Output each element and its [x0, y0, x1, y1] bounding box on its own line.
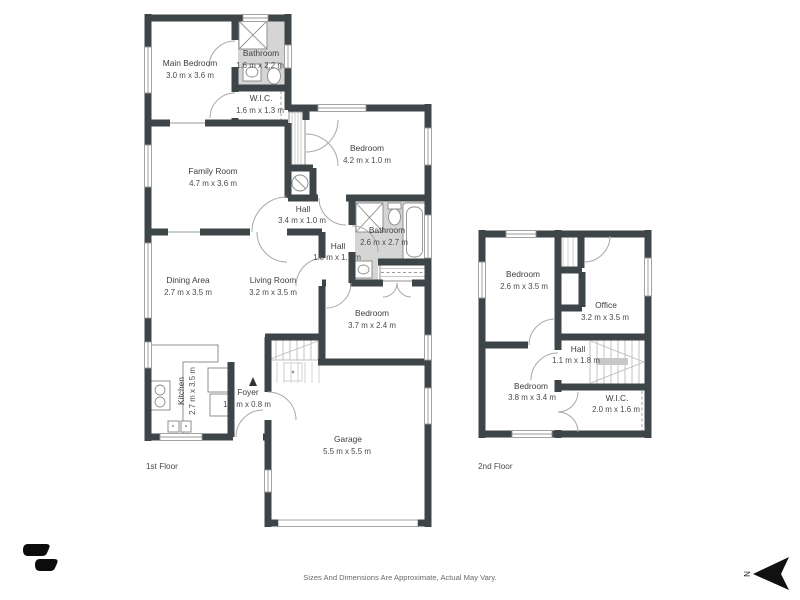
room-dims-foyer: 1.4 m x 0.8 m — [223, 400, 271, 409]
stair-handrail — [596, 358, 628, 365]
room-label-dining-area: Dining Area — [166, 275, 210, 285]
room-dims-family-room: 4.7 m x 3.6 m — [189, 179, 237, 188]
room-dims-kitchen: 2.7 m x 3.5 m — [188, 367, 197, 415]
room-dims-bedroom-upper: 2.6 m x 3.5 m — [500, 282, 548, 291]
disclaimer-text: Sizes And Dimensions Are Approximate, Ac… — [303, 573, 496, 582]
floor-plan-image: Main Bedroom 3.0 m x 3.6 m Bathroom 1.6 … — [0, 0, 800, 600]
room-dims-bathroom-main: 2.6 m x 2.7 m — [360, 238, 408, 247]
room-dims-dining-area: 2.7 m x 3.5 m — [164, 288, 212, 297]
room-label-wic-second: W.I.C. — [606, 393, 629, 403]
first-floor: Main Bedroom 3.0 m x 3.6 m Bathroom 1.6 … — [145, 14, 432, 527]
room-dims-living-room: 3.2 m x 3.5 m — [249, 288, 297, 297]
water-heater-icon — [292, 175, 308, 191]
room-dims-garage: 5.5 m x 5.5 m — [323, 447, 371, 456]
toilet-icon — [388, 203, 401, 209]
room-label-hall: Hall — [571, 344, 586, 354]
room-dims-main-bedroom: 3.0 m x 3.6 m — [166, 71, 214, 80]
room-dims-hall: 1.1 m x 1.8 m — [552, 356, 600, 365]
room-dims-bedroom-top: 4.2 m x 1.0 m — [343, 156, 391, 165]
stair-direction-arrow-icon — [249, 377, 257, 386]
second-floor: Bedroom 2.6 m x 3.5 m Office 3.2 m x 3.5… — [478, 230, 652, 471]
room-label-living-room: Living Room — [250, 275, 297, 285]
room-label-bedroom-lower: Bedroom — [514, 381, 548, 391]
room-label-bathroom-small: Bathroom — [243, 48, 279, 58]
room-label-bathroom-main: Bathroom — [369, 225, 405, 235]
room-label-garage: Garage — [334, 434, 362, 444]
room-dims-hall-upper: 3.4 m x 1.0 m — [278, 216, 326, 225]
room-dims-hall-lower: 1.0 m x 1.7 m — [313, 253, 361, 262]
room-dims-bathroom-small: 1.6 m x 2.2 m — [236, 61, 284, 70]
garage-door — [278, 520, 418, 527]
room-label-family-room: Family Room — [188, 166, 237, 176]
room-dims-bedroom-mid: 3.7 m x 2.4 m — [348, 321, 396, 330]
compass-north-label: N — [743, 571, 752, 577]
room-label-hall-lower: Hall — [331, 241, 346, 251]
room-label-bedroom-mid: Bedroom — [355, 308, 389, 318]
room-label-main-bedroom: Main Bedroom — [163, 58, 217, 68]
room-label-bedroom-upper: Bedroom — [506, 269, 540, 279]
room-dims-wic-second: 2.0 m x 1.6 m — [592, 405, 640, 414]
closet-hatch — [563, 236, 573, 266]
cabinet-icon — [208, 368, 228, 392]
room-dims-office: 3.2 m x 3.5 m — [581, 313, 629, 322]
room-dims-wic: 1.6 m x 1.3 m — [236, 106, 284, 115]
room-label-wic: W.I.C. — [250, 93, 273, 103]
north-arrow-icon: N — [743, 557, 789, 590]
room-label-bedroom-top: Bedroom — [350, 143, 384, 153]
brand-logo-icon — [23, 544, 58, 571]
second-floor-label: 2nd Floor — [478, 462, 513, 471]
room-label-office: Office — [595, 300, 617, 310]
staircase-icon — [249, 339, 322, 386]
room-label-kitchen: Kitchen — [176, 377, 186, 405]
first-floor-label: 1st Floor — [146, 462, 178, 471]
room-label-foyer: Foyer — [237, 387, 259, 397]
room-label-hall-upper: Hall — [296, 204, 311, 214]
room-dims-bedroom-lower: 3.8 m x 3.4 m — [508, 393, 556, 402]
